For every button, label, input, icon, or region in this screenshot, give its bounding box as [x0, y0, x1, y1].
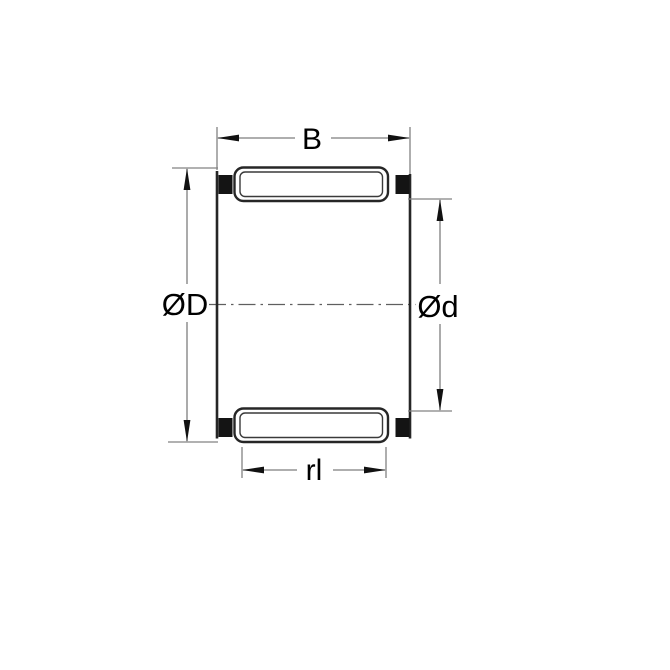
cage-block-bottom-left — [219, 418, 233, 437]
rl-dimension-label: rl — [306, 454, 323, 487]
id-arrow-up-icon — [437, 199, 444, 221]
od-arrow-up-icon — [184, 168, 191, 190]
rl-arrow-right-icon — [364, 467, 386, 474]
cage-block-top-right — [396, 175, 410, 194]
id-dimension-label: Ød — [417, 289, 458, 324]
rl-arrow-left-icon — [242, 467, 264, 474]
top-roller — [235, 168, 389, 202]
diagram-canvas: B ØD Ød — [0, 0, 670, 670]
roller-length-dimension: rl — [242, 447, 386, 487]
bearing-diagram: B ØD Ød — [0, 0, 670, 670]
id-arrow-down-icon — [437, 389, 444, 411]
od-dimension-label: ØD — [162, 287, 209, 322]
bottom-roller — [235, 409, 389, 443]
b-arrow-right-icon — [388, 135, 410, 142]
cage-block-bottom-right — [396, 418, 410, 437]
b-dimension-label: B — [302, 123, 322, 156]
b-arrow-left-icon — [217, 135, 239, 142]
od-arrow-down-icon — [184, 420, 191, 442]
cage-block-top-left — [219, 175, 233, 194]
